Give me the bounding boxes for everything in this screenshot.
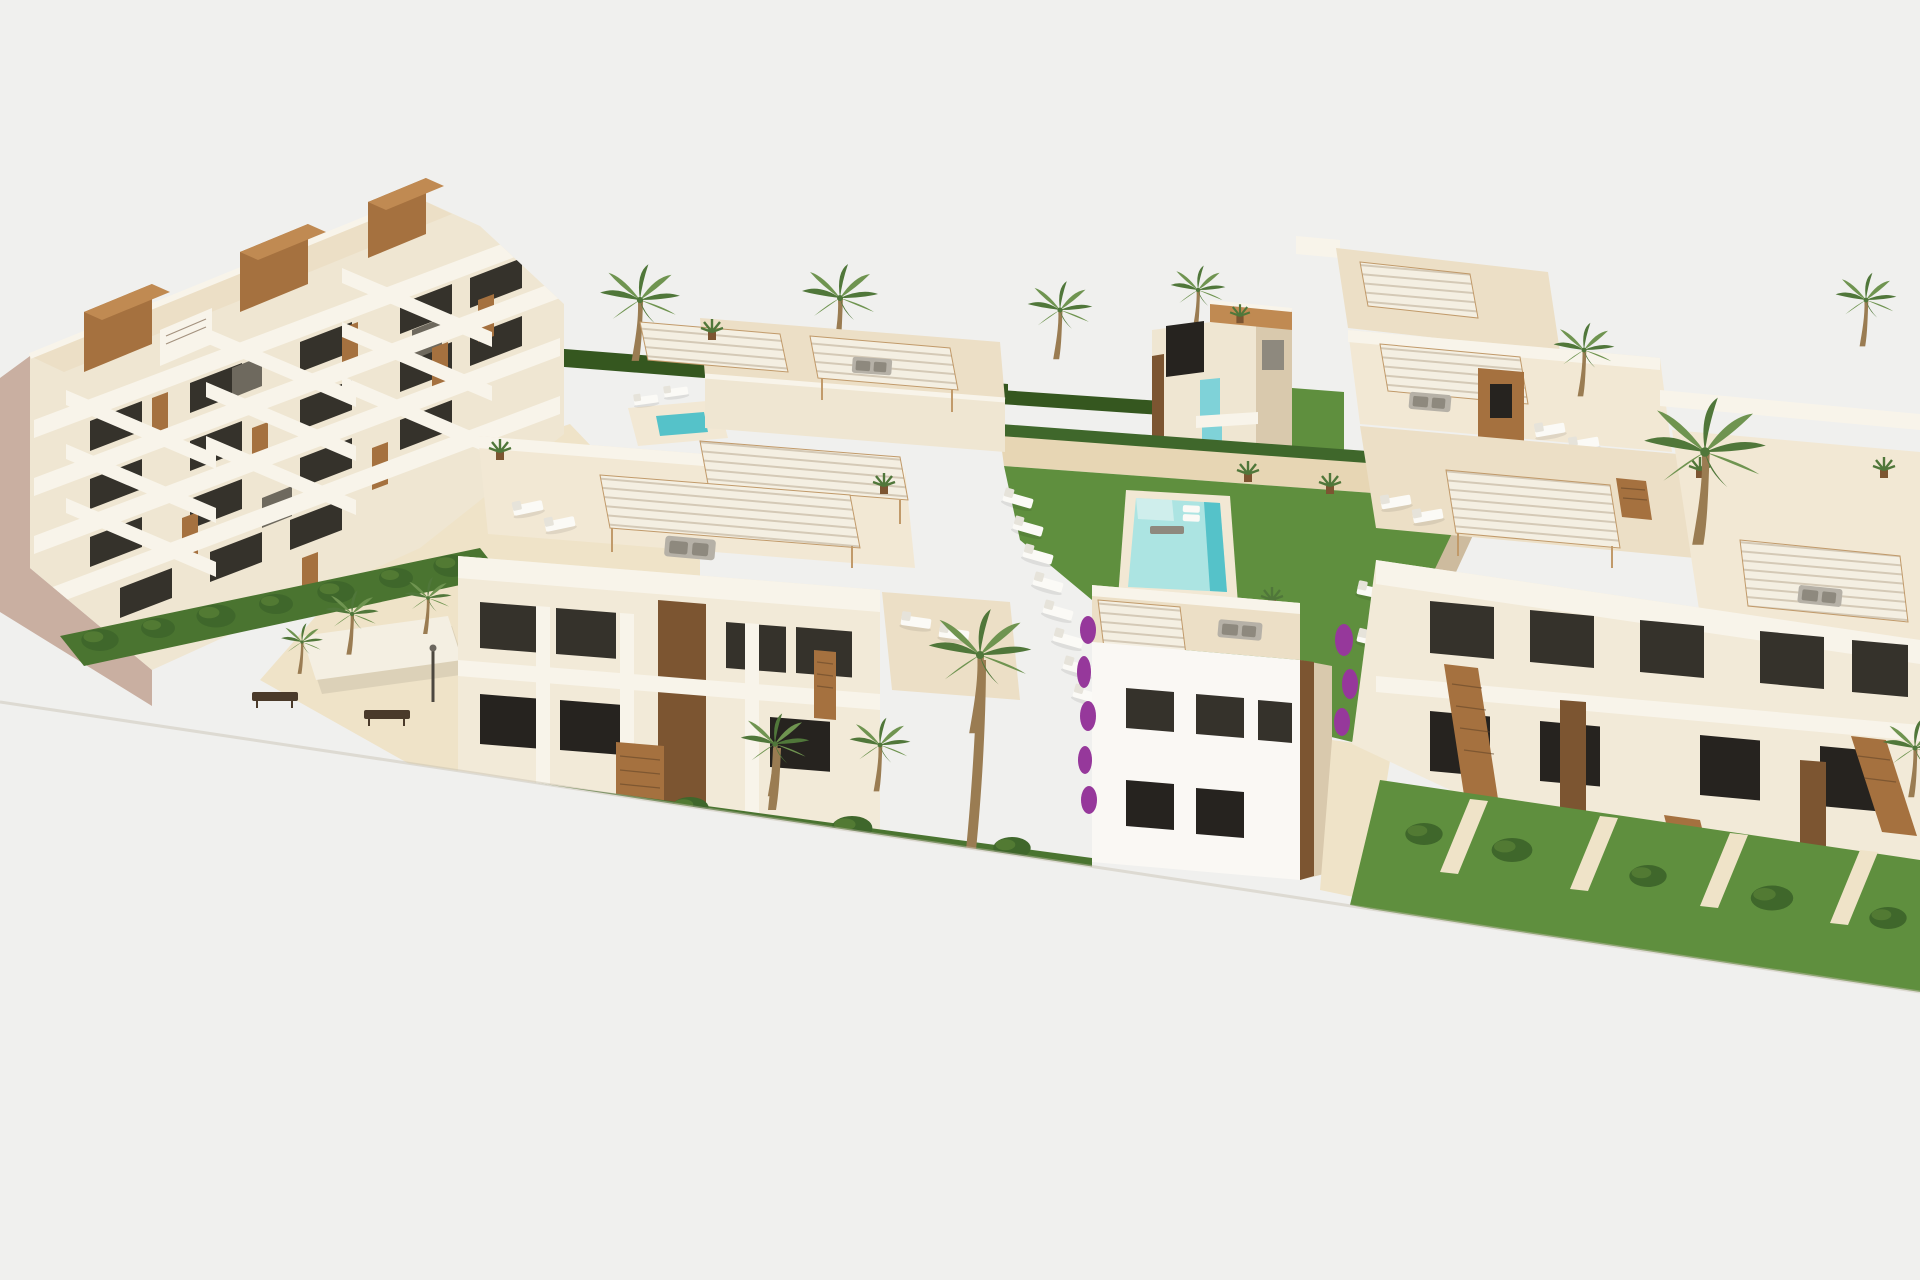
hedge-bush (81, 629, 118, 651)
hedge-bush (141, 618, 175, 638)
outdoor-sofa (1408, 392, 1451, 413)
wooden-staircase (814, 650, 836, 720)
hedge-bush (196, 605, 235, 628)
teal-glass-balcony (1200, 378, 1220, 420)
hedge-bush (1869, 907, 1906, 929)
outdoor-sofa (1217, 619, 1262, 641)
outdoor-sofa (852, 357, 893, 376)
hedge-bush (1751, 886, 1794, 911)
plunge-pool (656, 412, 708, 436)
hedge-bush (379, 568, 413, 588)
hedge-bush (1405, 823, 1442, 845)
wood-slat-core (658, 600, 706, 812)
hedge-bush (1492, 838, 1533, 862)
hedge-bush (259, 594, 293, 614)
outdoor-sofa (664, 535, 716, 560)
architectural-render (0, 0, 1920, 1280)
front-face (1092, 642, 1300, 880)
render-canvas (0, 0, 1920, 1280)
swimming-pool (1128, 498, 1227, 592)
hedge-bush (1629, 865, 1666, 887)
